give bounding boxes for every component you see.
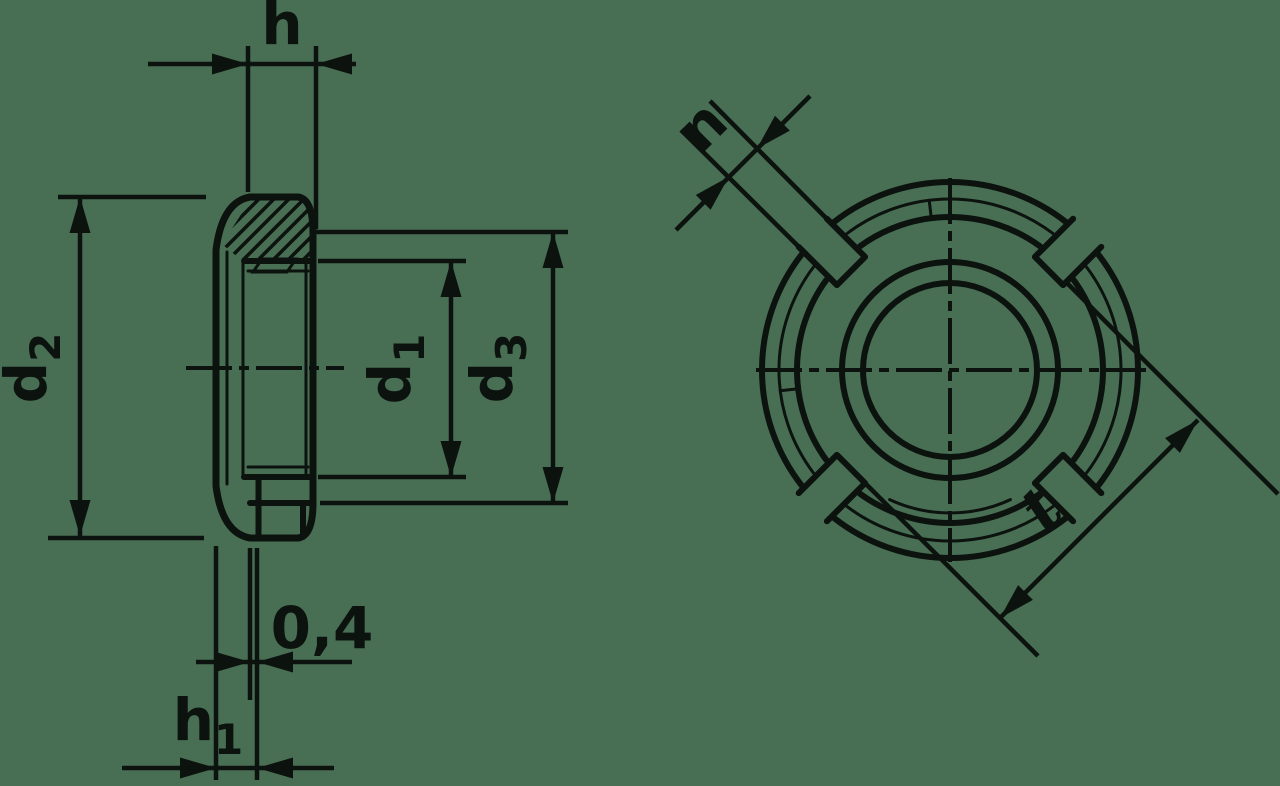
technical-drawing-canvas: h d2 d1 d3 xyxy=(0,0,1280,786)
section-view: h d2 d1 d3 xyxy=(0,0,568,780)
step-arrow-left xyxy=(214,652,250,673)
d1-arrow-top xyxy=(441,261,462,297)
h1-arrow-left xyxy=(180,758,216,779)
dimension-d2: d2 xyxy=(0,197,206,538)
h1-arrow-right xyxy=(257,758,293,779)
label-d3: d3 xyxy=(458,333,536,404)
d1-arrow-bottom xyxy=(441,441,462,477)
n-extension-line-b xyxy=(710,101,827,219)
front-view: n t xyxy=(663,87,1278,656)
d3-arrow-top xyxy=(543,232,564,268)
d2-arrow-top xyxy=(70,197,91,233)
slotted-nut-drawing: h d2 d1 d3 xyxy=(0,0,1280,786)
label-h1: h1 xyxy=(173,686,244,764)
d2-arrow-bottom xyxy=(70,500,91,536)
label-d1: d1 xyxy=(356,334,434,405)
dimension-d3: d3 xyxy=(316,232,568,503)
h-arrow-right xyxy=(316,54,352,75)
t-extension-line-sw xyxy=(862,480,1038,656)
label-n: n xyxy=(663,87,740,164)
label-d2: d2 xyxy=(0,333,70,404)
h-arrow-left xyxy=(212,54,248,75)
label-h: h xyxy=(261,0,302,58)
d3-arrow-bottom xyxy=(543,467,564,503)
dimension-t: t xyxy=(862,284,1278,656)
dimension-n: n xyxy=(663,87,827,247)
label-step-04: 0,4 xyxy=(271,594,374,662)
